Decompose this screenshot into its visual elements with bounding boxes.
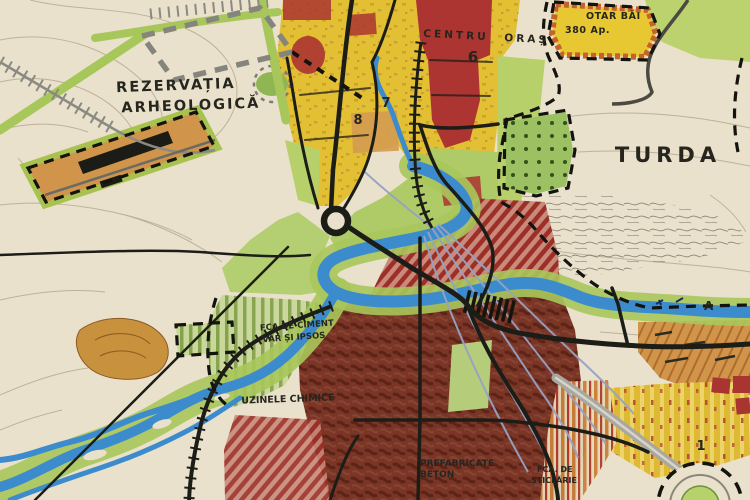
map-canvas: REZERVAȚIA ARHEOLOGICĂ CENTRU ORAȘ 6 7 8… [0, 0, 750, 500]
label-hotar-line2: 380 Ap. [565, 25, 610, 36]
label-river-a: A [704, 299, 714, 313]
red-block-a [283, 0, 331, 20]
label-glass-line1: FCA. DE [537, 465, 573, 474]
label-district-7: 7 [381, 96, 390, 111]
label-district-1: 1 [696, 439, 705, 454]
label-district-6: 6 [468, 48, 478, 66]
label-glass-line2: STICLĂRIE [531, 474, 577, 485]
label-district-8: 8 [353, 113, 362, 128]
roundabout [324, 209, 348, 233]
label-turda: TURDA [615, 143, 721, 167]
red-block-c [348, 13, 376, 36]
label-prefab-line1: PREFABRICATE [420, 459, 494, 469]
label-prefab-line2: BETON [420, 470, 454, 480]
zone-chemical-works [224, 415, 330, 500]
green-strip-yard [448, 340, 492, 412]
label-hotar-line1: OTAR BĂI [586, 10, 641, 22]
turda-plan-map: REZERVAȚIA ARHEOLOGICĂ CENTRU ORAȘ 6 7 8… [0, 0, 750, 500]
orchard-grid [505, 112, 573, 194]
